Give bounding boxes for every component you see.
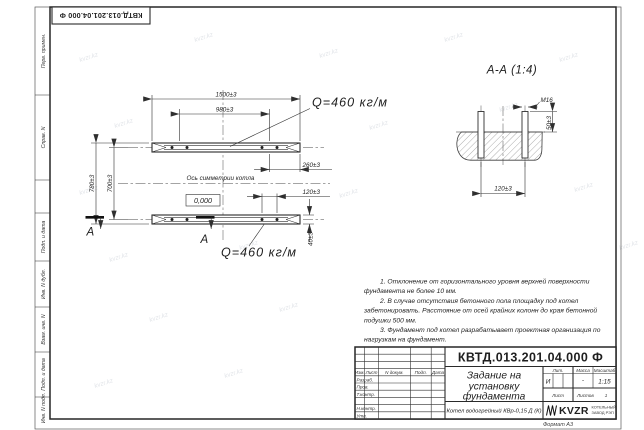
technical-notes: 1. Отклонение от горизонтального уровня … bbox=[363, 278, 601, 344]
col-list: Лист bbox=[365, 370, 378, 375]
note-line: фундамента не более 10 мм. bbox=[364, 287, 457, 295]
left-margin-strip: Перв. примен. Справ. N Подп. и дата Инв.… bbox=[35, 34, 50, 423]
level-mark-value: 0,000 bbox=[194, 196, 212, 205]
dim-980: 980±3 bbox=[180, 106, 270, 141]
value-mass: - bbox=[582, 378, 584, 385]
section-view: А-А (1:4) М16 50±3 120±3 bbox=[456, 65, 557, 198]
note-line: подушки 500 мм. bbox=[364, 316, 417, 324]
rail-bottom bbox=[152, 215, 300, 224]
col-podp: Подп. bbox=[415, 370, 427, 375]
margin-label-podp-data-1: Подп. и дата bbox=[41, 221, 47, 254]
dim-260-label: 260±3 bbox=[302, 162, 321, 169]
top-doc-number: КВТД.013.201.04.000 Ф bbox=[60, 11, 143, 20]
dim-260: 260±3 bbox=[254, 154, 332, 172]
margin-label-sprav-n: Справ. N bbox=[41, 126, 47, 148]
note-line: забетонировать. Расстояние от осей крайн… bbox=[363, 307, 597, 315]
dim-120-plan-label: 120±3 bbox=[303, 189, 321, 196]
gost-drawing-canvas: kvzr.kz kvzr.kz kvzr.kz kvzr.kz kvzr.kz … bbox=[0, 0, 644, 430]
watermark-text: kvzr.kz bbox=[193, 31, 214, 44]
margin-label-inv-dubl: Инв. N дубл. bbox=[41, 269, 47, 299]
plan-view: 1500±3 980±3 780±3 700±3 260±3 bbox=[86, 90, 388, 260]
thread-label: М16 bbox=[541, 97, 554, 104]
axis-of-symmetry-label: Ось симметрии котла bbox=[187, 175, 255, 182]
dim-780-label: 780±3 bbox=[89, 174, 96, 192]
watermark-text: kvzr.kz bbox=[113, 117, 134, 130]
row-nkontr: Н.контр. bbox=[357, 406, 376, 411]
col-data: Дата bbox=[431, 370, 445, 375]
load-label-bottom: Q=460 кг/м bbox=[221, 225, 297, 260]
load-label-top: Q=460 кг/м bbox=[230, 96, 388, 147]
watermark-text: kvzr.kz bbox=[368, 119, 389, 132]
watermark-text: kvzr.kz bbox=[108, 251, 129, 264]
dim-50-label: 50±3 bbox=[546, 116, 553, 130]
format-note: Формат А3 bbox=[543, 422, 574, 428]
watermark-text: kvzr.kz bbox=[618, 239, 639, 252]
margin-label-inv-podl: Инв. N подл. bbox=[41, 393, 47, 423]
watermark-text: kvzr.kz bbox=[318, 47, 339, 60]
watermark-text: kvzr.kz bbox=[78, 51, 99, 64]
note-line: 1. Отклонение от горизонтального уровня … bbox=[380, 278, 590, 286]
dim-40-label: 40±3 bbox=[308, 232, 315, 246]
section-letter-right: А bbox=[200, 234, 209, 246]
section-letter-left: А bbox=[86, 227, 95, 239]
drawing-title-line1: Задание на bbox=[467, 371, 522, 382]
header-sheet: Лист bbox=[551, 393, 564, 398]
watermark-text: kvzr.kz bbox=[93, 377, 114, 390]
watermark-text: kvzr.kz bbox=[558, 51, 579, 64]
load-bottom-text: Q=460 кг/м bbox=[221, 246, 297, 260]
value-scale: 1:15 bbox=[598, 379, 611, 386]
row-razrab: Разраб. bbox=[357, 377, 374, 382]
anchor-bolt-left bbox=[478, 112, 484, 159]
watermark-text: kvzr.kz bbox=[338, 187, 359, 200]
note-line: 3. Фундамент под котел разрабатывает про… bbox=[380, 326, 601, 334]
drawing-sheet: kvzr.kz kvzr.kz kvzr.kz kvzr.kz kvzr.kz … bbox=[0, 0, 644, 430]
col-izm: Изм. bbox=[355, 370, 365, 375]
watermark-text: kvzr.kz bbox=[443, 31, 464, 44]
company-name-line2: ЗАВОД РЭП bbox=[592, 410, 614, 415]
watermark-text: kvzr.kz bbox=[148, 311, 169, 324]
margin-label-vzam-inv: Взам. инв. N bbox=[41, 314, 47, 344]
rail-top bbox=[152, 143, 300, 152]
dim-120-section: 120±3 bbox=[481, 162, 525, 197]
watermark-text: kvzr.kz bbox=[223, 367, 244, 380]
dim-120-section-label: 120±3 bbox=[494, 186, 512, 193]
value-lit: И bbox=[546, 379, 551, 386]
value-sheets: 1 bbox=[605, 393, 608, 398]
thread-callout: М16 bbox=[513, 97, 554, 107]
note-line: нагрузкам на фундамент. bbox=[364, 336, 447, 344]
margin-label-podp-data-2: Подп. и дата bbox=[41, 358, 47, 391]
header-lit: Лит. bbox=[552, 368, 564, 373]
titleblock-doc-number: КВТД.013.201.04.000 Ф bbox=[458, 351, 603, 365]
header-sheets: Листов bbox=[576, 393, 594, 398]
col-ndoc: N докум. bbox=[385, 370, 404, 375]
watermark-text: kvzr.kz bbox=[278, 301, 299, 314]
company-name-line1: КОТЕЛЬНЫЙ bbox=[592, 405, 617, 410]
product-name: Котел водогрейный КВр-0,15 Д (К) bbox=[446, 408, 541, 415]
top-doc-number-box: КВТД.013.201.04.000 Ф bbox=[52, 7, 150, 24]
header-scale: Масштаб bbox=[594, 368, 616, 373]
dim-50-section: 50±3 bbox=[530, 112, 557, 133]
row-utv: Утв. bbox=[357, 413, 367, 418]
section-title: А-А (1:4) bbox=[486, 65, 538, 77]
row-prov: Пров. bbox=[357, 385, 369, 390]
level-mark: 0,000 bbox=[186, 195, 220, 207]
watermark-layer: kvzr.kz kvzr.kz kvzr.kz kvzr.kz kvzr.kz … bbox=[78, 31, 639, 390]
margin-label-perv-primen: Перв. примен. bbox=[41, 34, 47, 68]
dim-1500-label: 1500±3 bbox=[216, 91, 237, 98]
section-mark-left: А bbox=[86, 217, 105, 238]
title-block: КВТД.013.201.04.000 Ф Задание на установ… bbox=[355, 347, 616, 419]
dim-1500: 1500±3 bbox=[152, 91, 300, 141]
drawing-title-line3: фундамента bbox=[463, 391, 526, 403]
dim-120-plan: 120±3 bbox=[247, 189, 330, 213]
anchor-bolt-right bbox=[522, 112, 528, 159]
dim-700-label: 700±3 bbox=[107, 174, 114, 192]
concrete-pad bbox=[457, 132, 542, 160]
watermark-text: kvzr.kz bbox=[573, 181, 594, 194]
load-top-text: Q=460 кг/м bbox=[312, 96, 388, 110]
watermark-text: kvzr.kz bbox=[498, 101, 519, 114]
note-line: 2. В случае отсутствия бетонного пола пл… bbox=[379, 297, 578, 305]
dim-980-label: 980±3 bbox=[216, 106, 234, 113]
header-mass: Масса bbox=[576, 368, 590, 373]
logo-text: KVZR bbox=[559, 405, 589, 417]
dim-40: 40±3 bbox=[303, 199, 315, 246]
row-tkontr: Т.контр. bbox=[357, 392, 376, 397]
